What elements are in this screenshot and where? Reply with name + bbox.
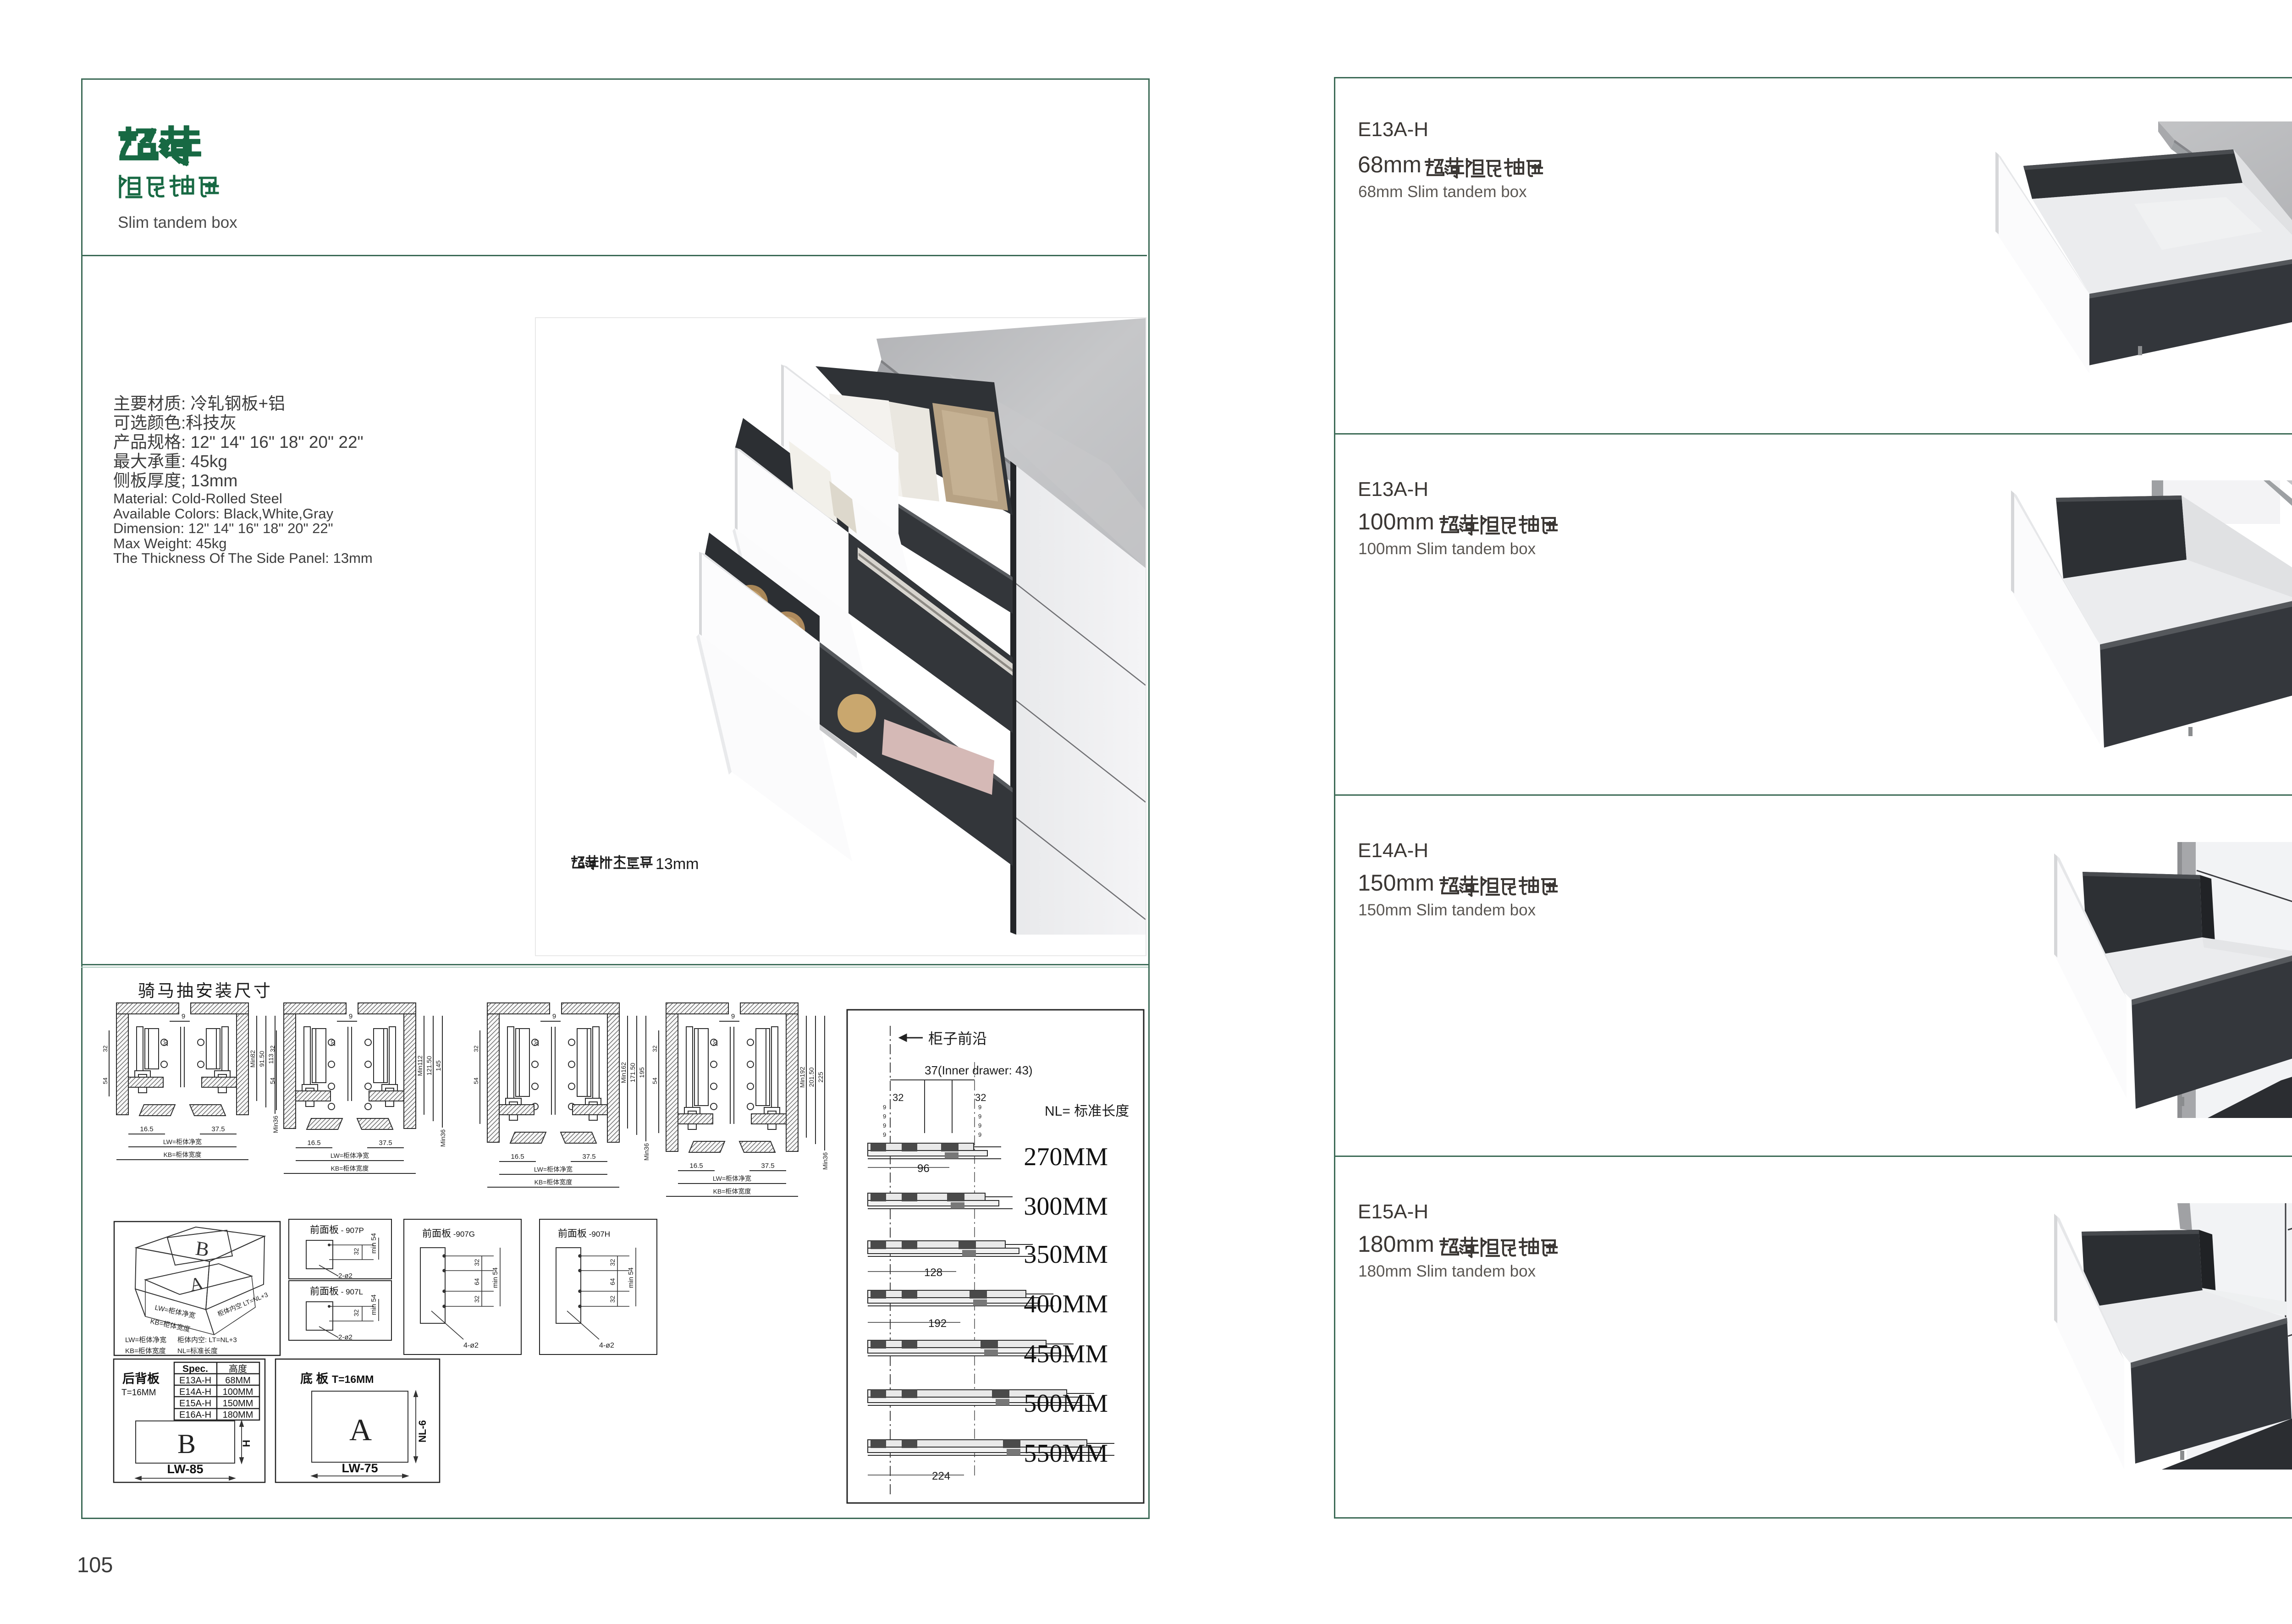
svg-text:9: 9 <box>978 1122 981 1129</box>
svg-text:32: 32 <box>609 1259 616 1266</box>
svg-text:16.5: 16.5 <box>689 1162 703 1170</box>
svg-text:E16A-H: E16A-H <box>179 1410 211 1420</box>
svg-text:Min36: Min36 <box>439 1129 446 1147</box>
svg-text:32: 32 <box>975 1092 986 1103</box>
svg-text:68MM: 68MM <box>225 1376 251 1386</box>
svg-text:16.5: 16.5 <box>511 1153 524 1161</box>
svg-text:LW=柜体净宽: LW=柜体净宽 <box>713 1175 751 1182</box>
svg-text:201.50: 201.50 <box>808 1067 815 1087</box>
svg-text:32: 32 <box>473 1295 480 1303</box>
svg-text:121.50: 121.50 <box>425 1056 433 1075</box>
svg-text:LW=柜体净宽: LW=柜体净宽 <box>125 1336 166 1344</box>
svg-text:Min36: Min36 <box>272 1116 279 1133</box>
svg-text:LW-75: LW-75 <box>342 1461 378 1475</box>
svg-text:KB=柜体宽度: KB=柜体宽度 <box>534 1178 573 1186</box>
svg-text:NL-6: NL-6 <box>417 1420 428 1442</box>
svg-text:前面板 - 907P: 前面板 - 907P <box>310 1225 364 1235</box>
svg-text:前面板 -907H: 前面板 -907H <box>558 1228 610 1239</box>
svg-text:LW=柜体净宽: LW=柜体净宽 <box>163 1138 202 1145</box>
svg-text:32: 32 <box>353 1309 360 1316</box>
svg-text:32: 32 <box>473 1046 479 1052</box>
svg-text:500MM: 500MM <box>1024 1389 1108 1418</box>
svg-text:20: 20 <box>162 1040 169 1046</box>
svg-text:底 板 T=16MM: 底 板 T=16MM <box>300 1371 374 1386</box>
svg-text:96: 96 <box>917 1162 930 1175</box>
svg-text:54: 54 <box>473 1078 479 1084</box>
svg-text:91.50: 91.50 <box>258 1051 265 1067</box>
svg-text:前面板 -907G: 前面板 -907G <box>422 1228 475 1239</box>
svg-text:32: 32 <box>102 1046 109 1052</box>
svg-text:180MM: 180MM <box>223 1410 253 1420</box>
svg-text:B: B <box>194 1237 211 1261</box>
svg-text:270MM: 270MM <box>1024 1143 1108 1171</box>
svg-text:Min162: Min162 <box>620 1062 627 1083</box>
svg-text:20: 20 <box>712 1040 719 1046</box>
svg-text:柜体内空 LT=NL+3: 柜体内空 LT=NL+3 <box>216 1291 269 1318</box>
svg-text:9: 9 <box>883 1122 886 1129</box>
svg-text:B: B <box>177 1429 196 1459</box>
svg-text:32: 32 <box>651 1046 658 1052</box>
svg-text:20: 20 <box>330 1040 336 1046</box>
svg-text:骑马抽安装尺寸: 骑马抽安装尺寸 <box>138 981 273 1000</box>
svg-text:LW-85: LW-85 <box>167 1462 204 1476</box>
svg-text:9: 9 <box>182 1013 185 1020</box>
svg-text:前面板 - 907L: 前面板 - 907L <box>310 1286 363 1297</box>
svg-text:A: A <box>349 1412 372 1447</box>
svg-text:4-ø2: 4-ø2 <box>463 1342 479 1349</box>
svg-text:113: 113 <box>267 1054 275 1064</box>
svg-text:37.5: 37.5 <box>761 1162 774 1170</box>
svg-text:min 54: min 54 <box>370 1294 378 1315</box>
svg-text:LW=柜体净宽: LW=柜体净宽 <box>154 1304 196 1320</box>
svg-text:20: 20 <box>533 1040 540 1046</box>
svg-text:Min192: Min192 <box>799 1067 806 1088</box>
svg-text:64: 64 <box>609 1278 616 1285</box>
svg-text:16.5: 16.5 <box>307 1139 320 1147</box>
svg-text:150MM: 150MM <box>223 1398 253 1409</box>
svg-text:100MM: 100MM <box>223 1387 253 1397</box>
svg-text:32: 32 <box>893 1092 904 1103</box>
svg-text:T=16MM: T=16MM <box>121 1388 156 1398</box>
svg-text:37.5: 37.5 <box>582 1153 595 1161</box>
svg-text:32: 32 <box>609 1295 616 1303</box>
svg-text:37.5: 37.5 <box>211 1125 225 1133</box>
svg-text:9: 9 <box>349 1013 353 1020</box>
svg-text:32: 32 <box>473 1259 480 1266</box>
svg-text:Min36: Min36 <box>643 1143 650 1161</box>
svg-text:2-ø2: 2-ø2 <box>338 1272 353 1280</box>
svg-text:225: 225 <box>817 1072 824 1083</box>
svg-text:224: 224 <box>932 1470 950 1482</box>
svg-text:450MM: 450MM <box>1024 1340 1108 1368</box>
svg-text:37.5: 37.5 <box>379 1139 392 1147</box>
svg-text:H: H <box>241 1440 252 1447</box>
svg-text:350MM: 350MM <box>1024 1240 1108 1269</box>
svg-text:9: 9 <box>978 1131 981 1138</box>
svg-text:NL= 标准长度: NL= 标准长度 <box>1045 1104 1129 1119</box>
svg-text:400MM: 400MM <box>1024 1290 1108 1318</box>
svg-text:高度: 高度 <box>229 1364 247 1374</box>
svg-text:9: 9 <box>978 1113 981 1120</box>
svg-text:9: 9 <box>883 1104 886 1111</box>
svg-text:550MM: 550MM <box>1024 1439 1108 1468</box>
svg-text:64: 64 <box>473 1278 480 1285</box>
svg-text:Min112: Min112 <box>416 1055 424 1076</box>
svg-text:9: 9 <box>552 1013 556 1020</box>
svg-text:9: 9 <box>883 1131 886 1138</box>
svg-text:9: 9 <box>978 1104 981 1111</box>
svg-text:171.50: 171.50 <box>629 1062 636 1082</box>
svg-text:KB=柜体宽度: KB=柜体宽度 <box>149 1317 191 1333</box>
svg-text:柜体内空: LT=NL+3: 柜体内空: LT=NL+3 <box>177 1336 237 1344</box>
svg-text:300MM: 300MM <box>1024 1192 1108 1221</box>
svg-text:min 54: min 54 <box>370 1233 378 1254</box>
svg-text:9: 9 <box>731 1013 735 1020</box>
svg-text:145: 145 <box>435 1060 442 1071</box>
svg-text:KB=柜体宽度: KB=柜体宽度 <box>164 1151 202 1158</box>
svg-text:LW=柜体净宽: LW=柜体净宽 <box>331 1152 369 1159</box>
svg-text:128: 128 <box>924 1266 942 1279</box>
svg-text:32: 32 <box>269 1046 276 1052</box>
svg-text:KB=柜体宽度: KB=柜体宽度 <box>713 1188 751 1195</box>
svg-text:E15A-H: E15A-H <box>179 1398 211 1409</box>
svg-text:13mm: 13mm <box>656 855 699 873</box>
svg-text:Min82: Min82 <box>249 1050 256 1068</box>
svg-text:16.5: 16.5 <box>140 1125 153 1133</box>
svg-text:柜子前沿: 柜子前沿 <box>928 1030 987 1047</box>
svg-text:min 54: min 54 <box>627 1267 635 1288</box>
svg-text:LW=柜体净宽: LW=柜体净宽 <box>534 1166 573 1173</box>
svg-text:54: 54 <box>651 1078 658 1084</box>
svg-text:KB=柜体宽度: KB=柜体宽度 <box>331 1165 369 1172</box>
svg-text:195: 195 <box>638 1067 645 1078</box>
svg-text:4-ø2: 4-ø2 <box>599 1342 614 1349</box>
svg-text:Spec.: Spec. <box>182 1364 208 1374</box>
svg-text:min 54: min 54 <box>491 1267 499 1288</box>
svg-text:E14A-H: E14A-H <box>179 1387 211 1397</box>
svg-text:KB=柜体宽度: KB=柜体宽度 <box>125 1347 166 1355</box>
svg-text:54: 54 <box>269 1078 276 1084</box>
svg-text:9: 9 <box>883 1113 886 1120</box>
svg-text:32: 32 <box>353 1248 360 1255</box>
svg-text:54: 54 <box>102 1078 109 1084</box>
svg-text:Min36: Min36 <box>821 1152 829 1170</box>
svg-text:NL=标准长度: NL=标准长度 <box>177 1347 218 1355</box>
svg-text:2-ø2: 2-ø2 <box>338 1333 353 1341</box>
svg-text:后背板: 后背板 <box>122 1372 160 1386</box>
svg-text:E13A-H: E13A-H <box>179 1376 211 1386</box>
svg-text:192: 192 <box>928 1317 947 1330</box>
svg-text:37(Inner drawer: 43): 37(Inner drawer: 43) <box>925 1063 1033 1077</box>
